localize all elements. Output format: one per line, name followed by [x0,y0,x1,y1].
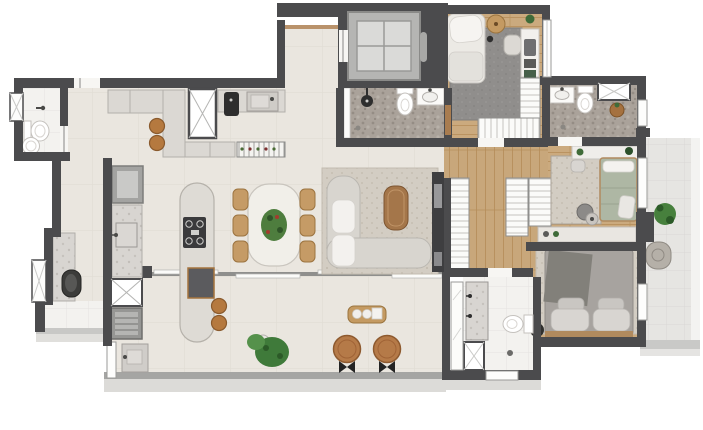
track-wall-stub [142,266,152,278]
bedroom2-balcony-door [638,158,647,208]
side-table-bowl [363,310,372,319]
sliding-door-leaf [236,274,300,278]
bath2-bottom-wall-b [582,137,646,146]
master-toilet-tank [524,315,533,333]
bath1-glass-panel [344,88,350,138]
bath2-faucet [560,87,564,91]
bath2-hanging-plant-leaf [615,103,620,108]
bath2-toilet-tank [578,86,593,93]
balcony-top-stub [636,128,650,137]
terrace-west-window [107,342,116,378]
bedroom2-master-wall [526,242,646,251]
dining-chair [233,215,248,236]
powder-right-wall [60,86,68,126]
sofa-cushion [332,235,355,266]
sliding-door-leaf [392,274,442,278]
bedroom1-door [478,138,504,147]
dresser-item [553,231,559,237]
kitchen-sink-basin [251,95,269,108]
elevator-door [420,32,427,62]
bath1-faucet [428,88,432,92]
hall-wardrobe [506,178,528,236]
coffee-machine-dot [230,99,233,102]
tv-screen [434,184,442,208]
dining-chair [300,189,315,210]
bbq-sink-basin [127,350,142,364]
service-edge-light [36,334,110,342]
dining-chair [233,241,248,262]
powder-faucet [41,106,45,110]
service-left-wall-c [35,300,45,332]
masterbath-vanity [466,282,488,340]
media-box [434,252,442,266]
closet-bottom-wall [504,138,548,147]
counter-stool [150,119,165,134]
bedroom1-laptop [524,39,536,56]
powder-sink [23,138,40,155]
counter-stool [150,136,165,151]
bath1-drain [356,126,361,131]
island-stool [212,299,227,314]
centerpiece-leaf [277,227,283,233]
wine-bottle [248,147,251,150]
terrace-plant-small [247,334,265,350]
side-table-cup [494,22,498,26]
balcony-armchair [646,242,671,269]
master-headboard [545,331,633,337]
vanity-stool-dot [590,217,594,221]
left-counter-sink [116,223,137,247]
masterbath-window [486,371,518,380]
terrace-east-wall [442,272,450,376]
hall-wardrobe [450,178,469,275]
shelf-item [524,70,536,78]
terrace-parapet [104,372,444,379]
desk-plant [526,15,535,24]
bbq-faucet [123,355,127,359]
service-entry-door [74,78,100,88]
bath2-sink-basin [555,91,569,100]
bedroom2-pillow [603,161,634,172]
refrigerator-inner [117,171,138,198]
service-left-wall-a [52,158,61,232]
powder-bottom-wall [14,152,70,161]
master-window [638,284,647,320]
bath1-left-wall [336,88,344,140]
master-toilet-bowl [503,316,523,333]
bath-block-ledge [442,380,541,390]
masterbath-top-wall-a [450,268,488,277]
dining-chair [300,241,315,262]
cooktop-center [191,230,199,235]
kitchen-counter-corner [163,90,185,157]
master-pillow [593,309,630,331]
bedroom1-wardrobe-bottom [478,118,540,140]
side-table-bowl [353,310,362,319]
bedroom2-blanket [618,195,636,219]
balcony-edge-light [640,349,700,356]
sofa-cushion [332,200,355,233]
master-pillow [551,309,589,331]
terrace-plant-leaf [263,345,269,351]
centerpiece-flower [266,230,270,234]
centerpiece-leaf [267,215,273,221]
dresser-item [543,231,549,237]
bath2-door [558,137,582,146]
kitchen-faucet [270,97,274,101]
floor-speaker [487,36,493,42]
masterbath-right-wall [533,277,541,380]
balcony-plant-leaf [657,205,664,212]
bath1-toilet-bowl [397,93,413,115]
floor-plan-layers [10,3,700,392]
kitchen-island [180,183,214,342]
foyer-left-wall [277,20,285,88]
bedroom1-top-wall [440,5,550,14]
bath2-bottom-wall-a [542,137,558,146]
bedroom1-pillow [449,14,484,43]
masterbath-top-wall-b [512,268,533,277]
foyer-accent-strip [285,25,340,29]
hall-living-wall [444,178,451,274]
terrace-ledge [104,379,446,392]
service-floor-white [45,301,108,331]
bath1-door-leaf [445,105,451,135]
outer-wall-top-kitchen [100,78,285,88]
bedroom2-chair [571,160,585,172]
balcony-wall-stub [636,212,654,242]
service-edge-dark [36,328,110,334]
wine-bottle [264,147,267,150]
bath1-bottom-wall [336,138,478,147]
coffee-machine [224,92,239,116]
service-sink-basin [65,274,77,292]
balcony-edge-dark [640,340,700,349]
wine-bottle [272,147,275,150]
balcony-plant-leaf [666,216,674,224]
centerpiece-flower [275,215,279,219]
floor-plan-svg [0,0,703,430]
master-shower-drain [507,350,513,356]
service-kitchen-divider [103,158,112,346]
hall-wardrobe [529,178,551,226]
bedroom2-desk-plant [577,149,584,156]
bedroom2-desk-plant [625,147,633,155]
terrace-plant-leaf [277,353,283,359]
side-balcony-edge-tiles [691,138,700,344]
bedroom1-desk-chair [504,35,521,55]
wine-bottle [256,147,259,150]
bath2-window [638,100,647,126]
island-stool [212,316,227,331]
bath1-sink-basin [423,92,438,102]
centerpiece-plant [261,209,287,241]
side-table-tray [372,308,382,319]
masterbath-door [488,268,512,277]
dining-chair [300,215,315,236]
bedroom2-dresser [538,227,636,242]
dining-chair [233,189,248,210]
entry-corridor-floor [66,86,106,162]
foyer-top-wall [277,3,341,17]
floor-plan-stage [0,0,703,430]
wine-rack [237,142,285,157]
bedroom1-duvet [449,52,483,81]
shelf-item [524,59,536,68]
master-bottom-wall [533,337,646,347]
foyer-floor [285,25,340,88]
bath1-shower-dot [366,100,369,103]
wine-bottle [240,147,243,150]
bath2-drain [561,125,566,130]
island-sink [188,268,214,298]
